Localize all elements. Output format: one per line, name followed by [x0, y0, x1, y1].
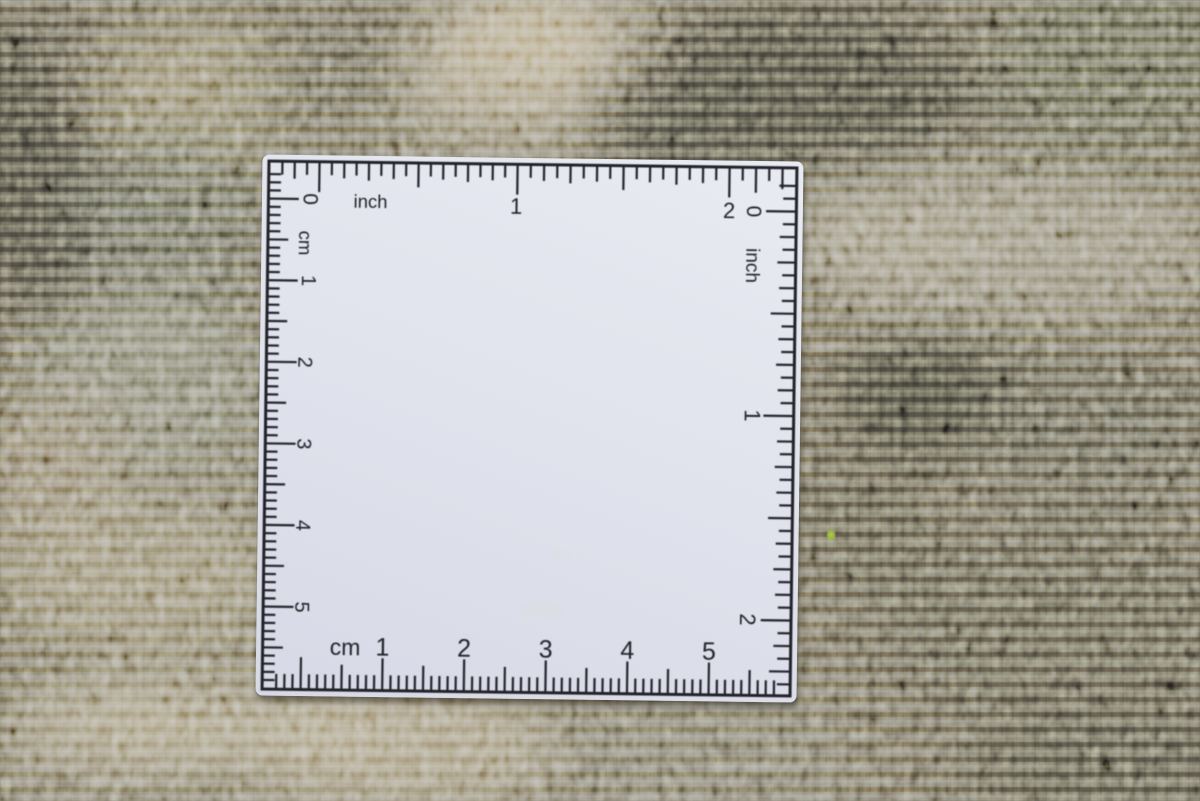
svg-text:0: 0	[741, 205, 764, 217]
svg-text:3: 3	[292, 438, 314, 449]
svg-text:2: 2	[293, 356, 315, 367]
svg-text:2: 2	[722, 198, 735, 223]
svg-text:1: 1	[375, 633, 389, 661]
svg-text:5: 5	[701, 637, 715, 665]
svg-text:1: 1	[297, 275, 319, 286]
svg-text:0: 0	[298, 193, 321, 205]
svg-text:2: 2	[735, 613, 760, 626]
svg-text:4: 4	[620, 636, 634, 664]
svg-text:2: 2	[457, 634, 471, 662]
svg-text:5: 5	[290, 601, 312, 612]
svg-text:3: 3	[538, 635, 552, 663]
svg-text:4: 4	[291, 519, 313, 530]
svg-text:1: 1	[510, 193, 523, 218]
svg-text:inch: inch	[741, 248, 762, 283]
svg-text:inch: inch	[353, 190, 387, 211]
svg-text:cm: cm	[329, 634, 360, 660]
svg-text:cm: cm	[295, 230, 316, 255]
svg-text:1: 1	[739, 409, 764, 422]
